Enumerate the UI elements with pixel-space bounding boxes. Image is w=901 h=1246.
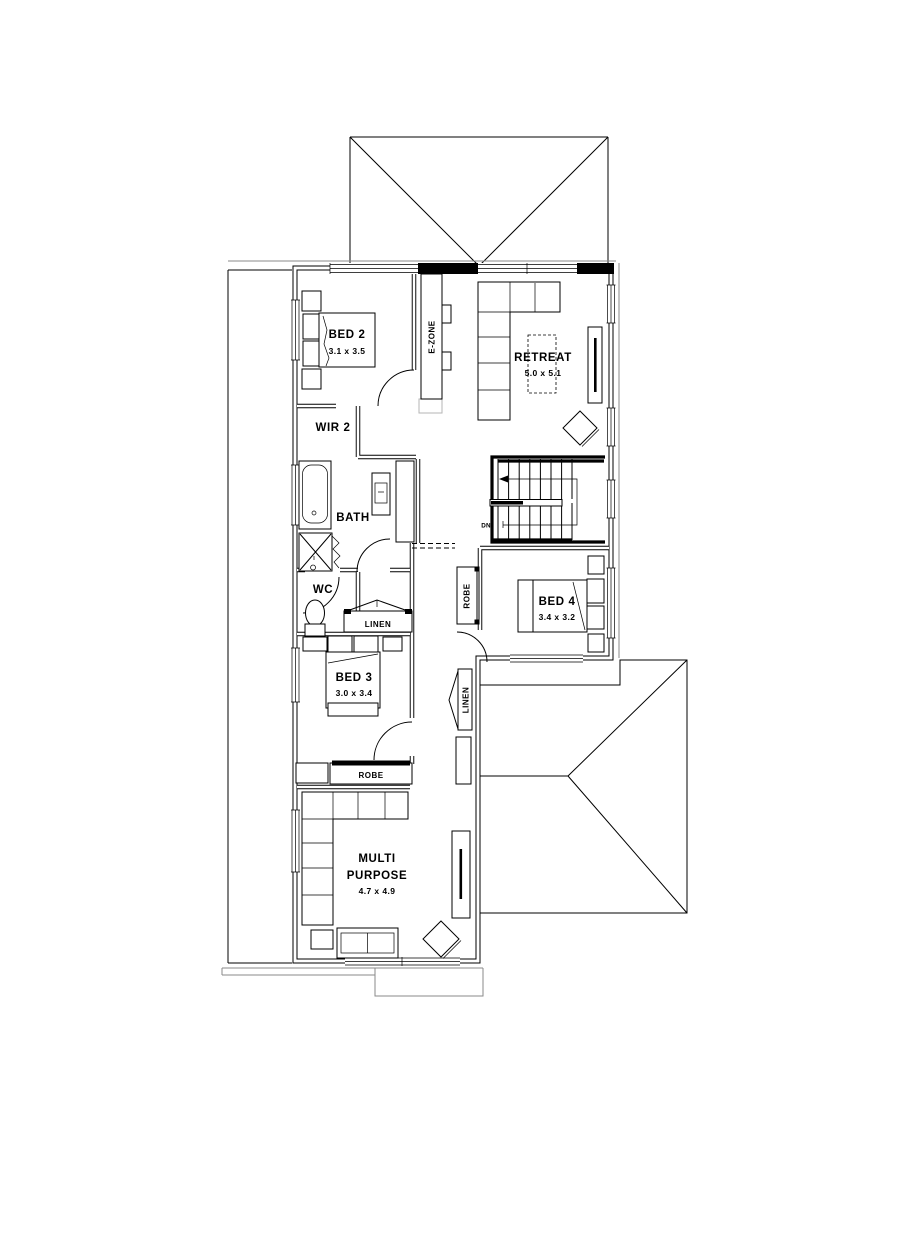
linen-upper-bifold-door [449, 671, 458, 729]
multi-label-line2: PURPOSE [347, 870, 407, 882]
retreat-sofa [478, 282, 560, 420]
ezone-label: E-ZONE [428, 320, 437, 353]
linen-hall-label: LINEN [365, 620, 392, 629]
solid-wall-band-right [577, 263, 614, 274]
robe-sliding-track [332, 761, 410, 766]
bed3-dims: 3.0 x 3.4 [336, 688, 373, 698]
multi-armchair [311, 930, 333, 949]
bath-label: BATH [336, 512, 370, 524]
retreat-label: RETREAT [514, 352, 572, 364]
retreat-dims: 5.0 x 5.1 [525, 368, 562, 378]
bed3-pillow [328, 636, 352, 652]
bed3-side-table [383, 637, 402, 651]
ezone-chair [442, 352, 451, 370]
room-bath: BATH [299, 461, 414, 571]
room-multipurpose: MULTI PURPOSE 4.7 x 4.9 [302, 792, 470, 959]
multi-label-line1: MULTI [358, 853, 395, 865]
bed3-door-arc [374, 722, 412, 760]
room-bed2: BED 2 3.1 x 3.5 WIR 2 [302, 291, 375, 434]
bed2-dims: 3.1 x 3.5 [329, 346, 366, 356]
bed3-side-table [303, 637, 327, 651]
floor-plan-drawing: DN BED 2 3.1 x 3.5 WIR 2 E-ZONE RETREAT … [0, 0, 901, 1246]
toilet-bowl [306, 600, 325, 626]
bed2-pillow [303, 314, 319, 339]
robe-bed3-label: ROBE [358, 771, 383, 780]
robe-bed4-label: ROBE [463, 583, 472, 608]
room-bed4: BED 4 3.4 x 3.2 [518, 556, 604, 652]
wir2-label: WIR 2 [316, 422, 351, 434]
multi-dims: 4.7 x 4.9 [359, 886, 396, 896]
bed2-side-table [302, 369, 321, 389]
bed2-label: BED 2 [329, 329, 366, 341]
linen-hall-closet: LINEN [344, 600, 412, 632]
linen-upper-closet: LINEN [449, 669, 472, 784]
retreat-dashed-outline [528, 335, 556, 393]
bed3-label: BED 3 [336, 672, 373, 684]
stairs-down-label: DN [481, 523, 491, 530]
bed4-dims: 3.4 x 3.2 [539, 612, 576, 622]
solid-wall-band-left [418, 263, 478, 274]
bed4-label: BED 4 [539, 596, 576, 608]
room-ezone: E-ZONE [419, 274, 451, 413]
bed4-side-table [588, 634, 604, 652]
bath-door-arc [357, 539, 390, 572]
linen-upper-label: LINEN [462, 687, 471, 714]
hall-cupboard [456, 737, 471, 784]
staircase: DN [481, 457, 605, 542]
bed2-door-arc [378, 370, 414, 406]
room-bed3: BED 3 3.0 x 3.4 [303, 636, 402, 716]
bed3-foot-blanket [328, 703, 378, 716]
bed3-pillow [354, 636, 378, 652]
retreat-side-table [563, 411, 597, 445]
floor-plan-page: DN BED 2 3.1 x 3.5 WIR 2 E-ZONE RETREAT … [0, 0, 901, 1246]
room-retreat: RETREAT 5.0 x 5.1 [478, 282, 602, 447]
ezone-chair [442, 305, 451, 323]
robe-bed3-closet: ROBE [296, 761, 412, 785]
lower-storey-strip [228, 270, 292, 963]
roof-outline-top [350, 137, 608, 266]
bed4-foot-blanket [518, 580, 533, 632]
bed4-pillow [587, 579, 604, 603]
bed2-pillow [303, 341, 319, 366]
bed4-side-table [588, 556, 604, 574]
bed4-pillow [587, 606, 604, 629]
wc-label: WC [313, 584, 333, 596]
room-wc: WC [305, 584, 333, 636]
stair-direction-arrow [499, 476, 508, 483]
roof-outline-lower-right [480, 660, 687, 913]
robe-bed4-closet: ROBE [457, 567, 480, 625]
bed2-side-table [302, 291, 321, 311]
toilet-tank [305, 624, 325, 636]
multi-side-table [423, 921, 459, 957]
bath-cabinet [396, 461, 414, 542]
